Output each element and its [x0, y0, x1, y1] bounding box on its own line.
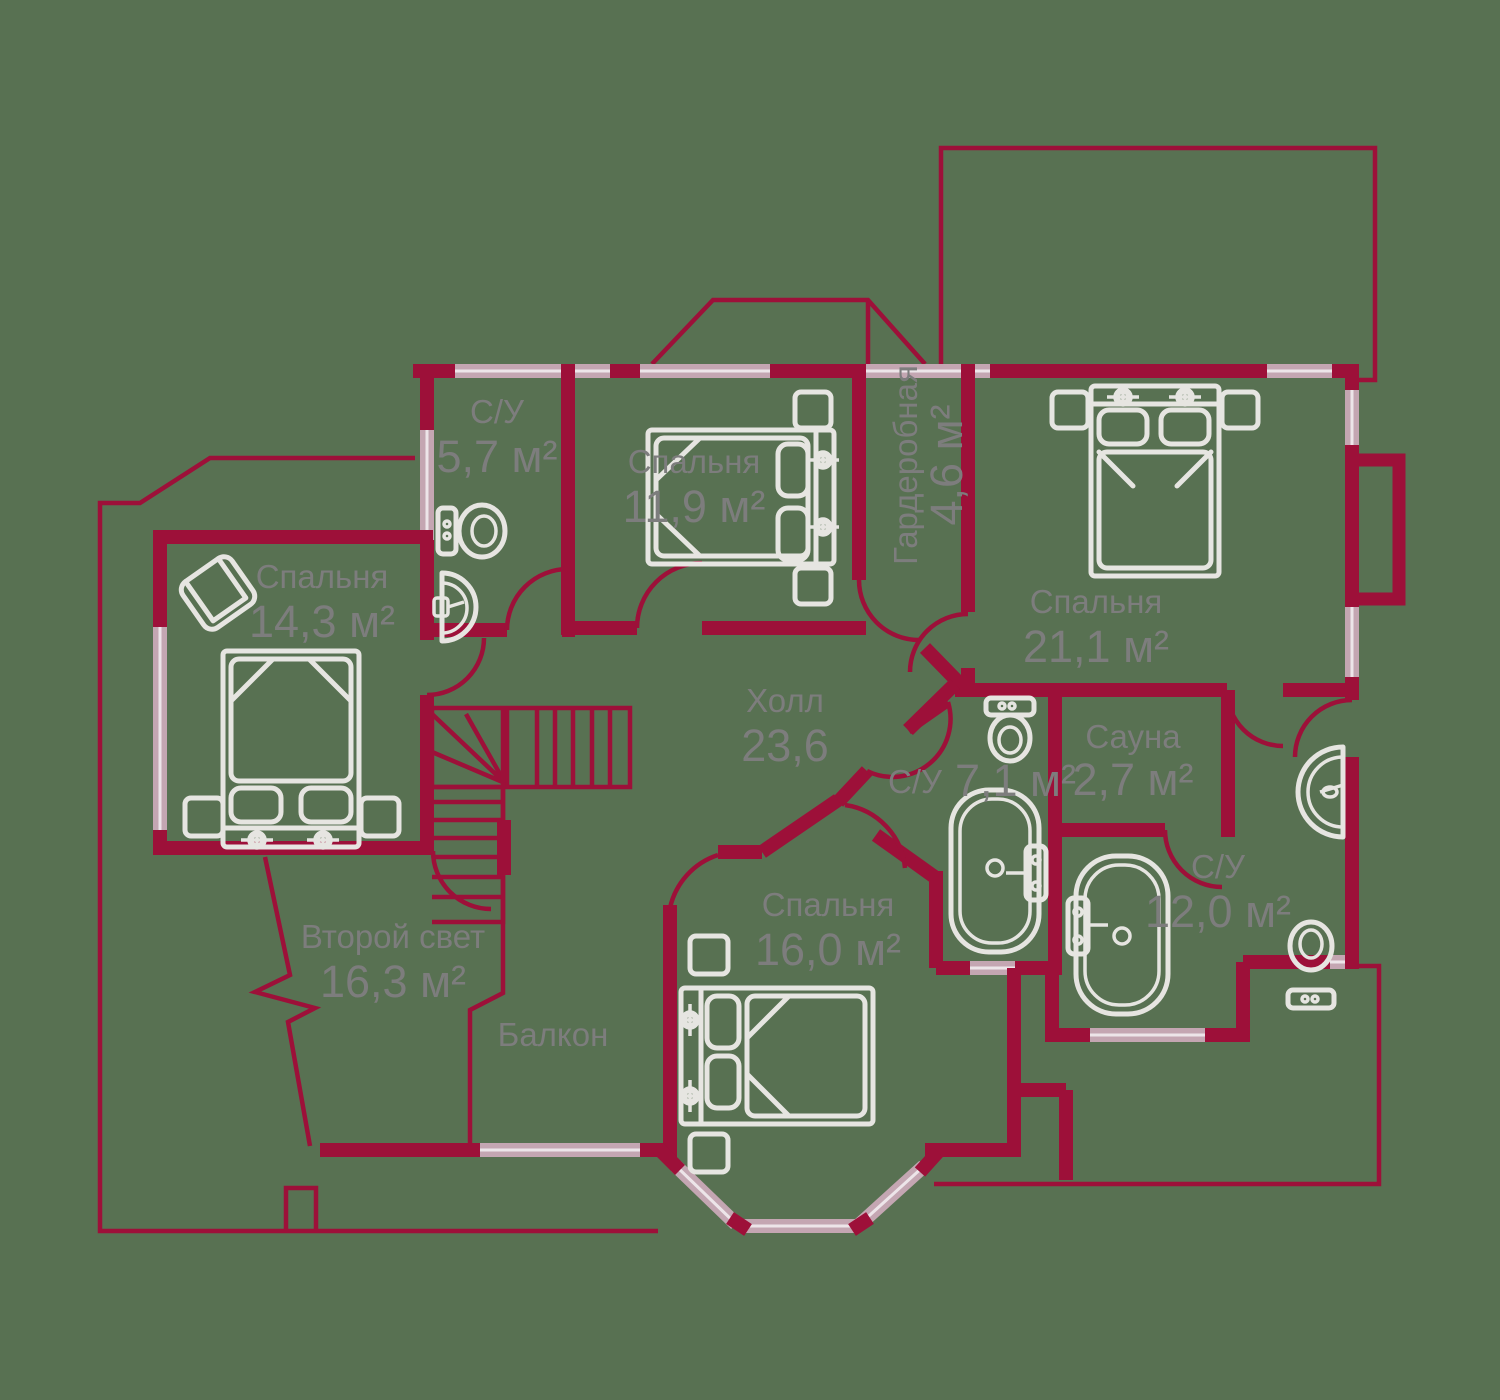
room-area: 14,3 м² [249, 596, 395, 647]
room-label-bedroom-bottom: Спальня 16,0 м² [755, 886, 901, 975]
room-name: Сауна [1085, 718, 1181, 755]
room-name: Второй свет [301, 918, 485, 955]
room-area: 2,7 м² [1073, 754, 1194, 805]
room-area: 5,7 м² [437, 431, 558, 482]
room-name: Спальня [762, 886, 895, 923]
room-area: 11,9 м² [623, 481, 766, 532]
room-name: Балкон [498, 1016, 609, 1053]
room-area: 7,1 м² [955, 755, 1076, 806]
room-label-bathroom-middle: С/У 7,1 м² [888, 755, 1076, 806]
room-name: Спальня [256, 558, 389, 595]
room-name: Спальня [1030, 583, 1163, 620]
room-area: 21,1 м² [1023, 621, 1169, 672]
room-area: 23,6 [741, 720, 829, 771]
room-area: 16,3 м² [320, 956, 466, 1007]
room-label-bedroom-right: Спальня 21,1 м² [1023, 583, 1169, 672]
room-area: 12,0 м² [1145, 886, 1291, 937]
room-name: С/У [470, 393, 525, 430]
room-name: С/У [1191, 848, 1246, 885]
room-area: 4,6 м² [921, 404, 972, 525]
room-label-bedroom-top: Спальня 11,9 м² [623, 443, 766, 532]
room-name: Гардеробная [887, 365, 924, 565]
floor-plan-canvas: С/У 5,7 м² Спальня 11,9 м² Гардеробная 4… [0, 0, 1500, 1400]
room-label-second-light: Второй свет 16,3 м² [301, 918, 485, 1007]
room-name: С/У [888, 763, 943, 800]
room-label-sauna: Сауна 2,7 м² [1073, 718, 1194, 805]
room-name: Холл [746, 682, 824, 719]
room-label-balcony: Балкон [498, 1016, 609, 1053]
floor-plan: С/У 5,7 м² Спальня 11,9 м² Гардеробная 4… [0, 0, 1500, 1400]
room-name: Спальня [628, 443, 761, 480]
room-label-bedroom-left: Спальня 14,3 м² [249, 558, 395, 647]
room-area: 16,0 м² [755, 924, 901, 975]
room-label-hall: Холл 23,6 [741, 682, 829, 771]
